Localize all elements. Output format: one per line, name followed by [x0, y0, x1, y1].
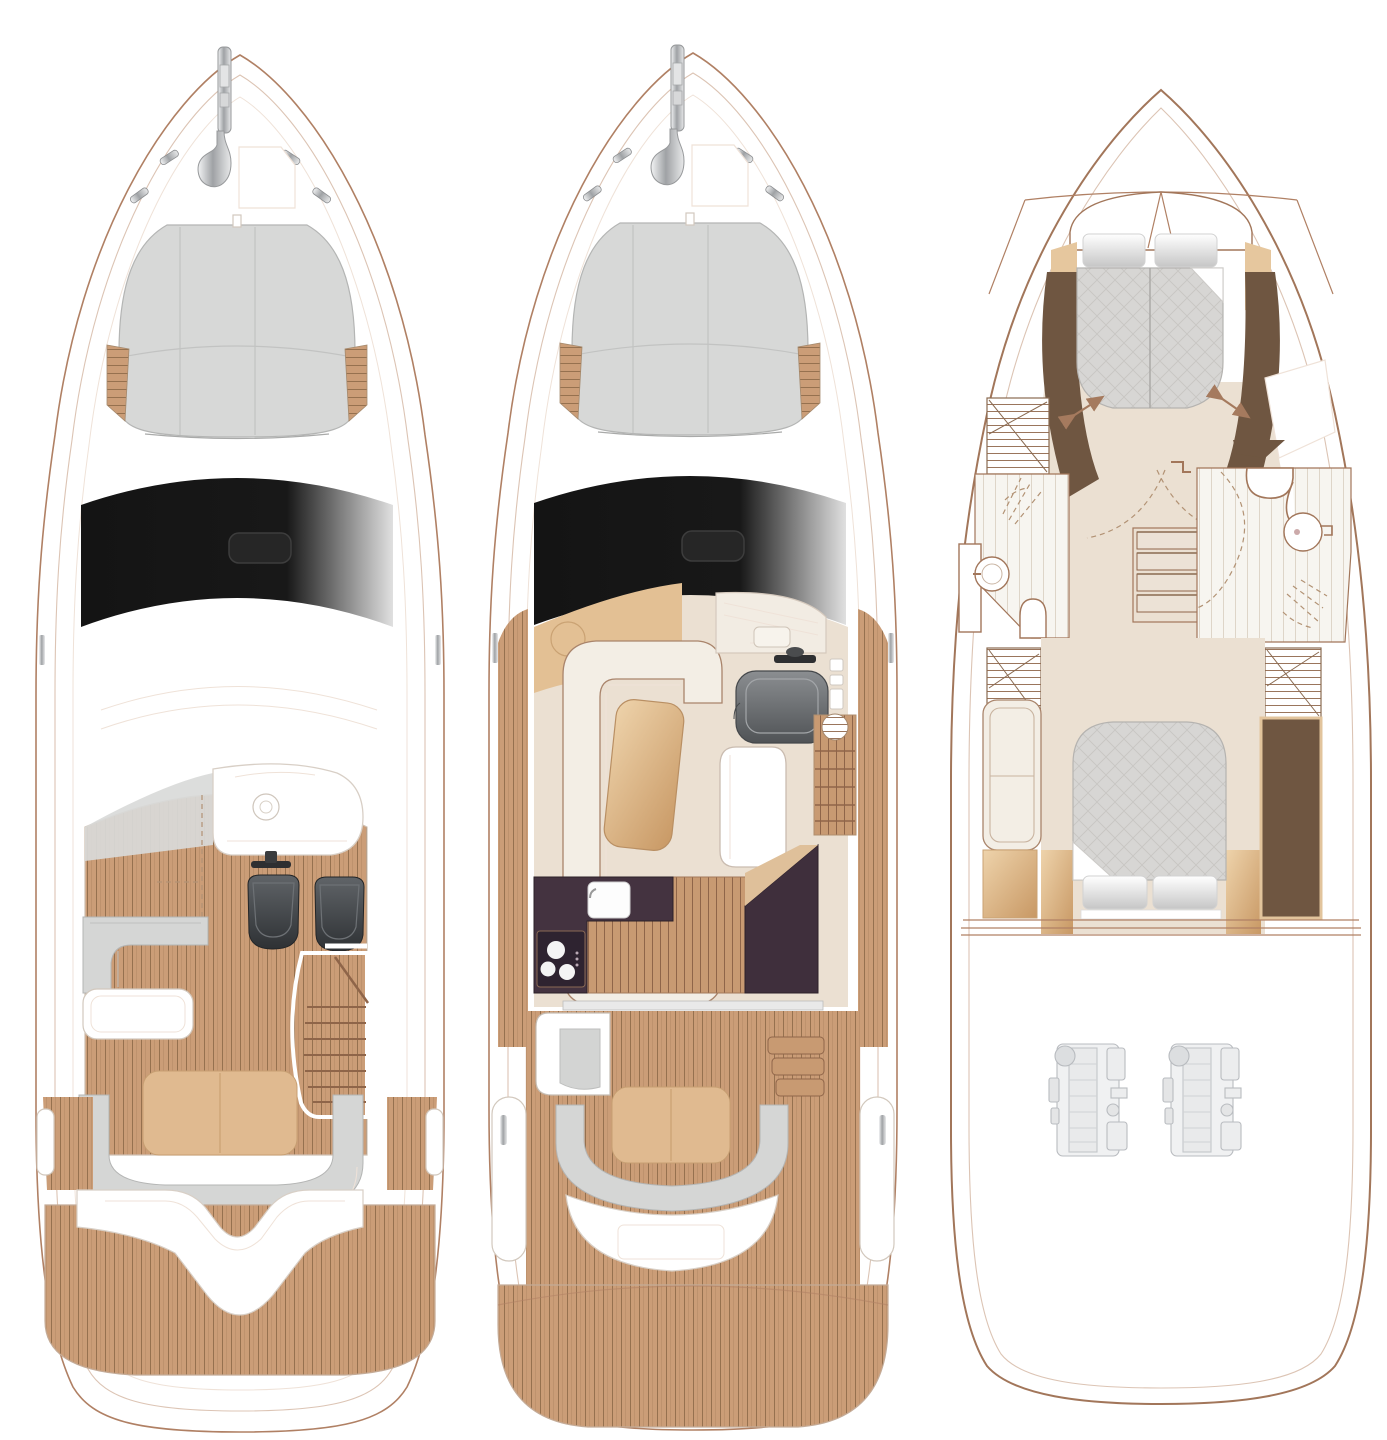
washbasin-icon: [1284, 513, 1322, 551]
side-cleat-right: [435, 635, 441, 665]
pillow: [1083, 234, 1145, 267]
vanity-below-sofa: [983, 850, 1037, 918]
cooktop-icon: [537, 931, 585, 987]
view-main-deck: [489, 45, 897, 1430]
view-lower-deck: [951, 90, 1371, 1404]
engine-port: [1049, 1044, 1127, 1156]
stairway-to-cockpit: [292, 953, 368, 1117]
instrument-binnacle: [754, 627, 790, 647]
bulwark-left: [492, 1097, 526, 1261]
side-cleat-left: [492, 633, 498, 663]
bed-mattress: [1073, 722, 1226, 880]
shower-room-port: [959, 474, 1069, 638]
side-deck-steps: [768, 1037, 824, 1096]
boarding-gate-left: [37, 1109, 54, 1175]
teak-side-deck-left: [498, 609, 528, 1047]
engine-starboard: [1163, 1044, 1241, 1156]
vanity-counter: [959, 544, 981, 632]
galley-sink: [588, 882, 630, 918]
side-cleat-left: [39, 635, 45, 665]
pillow: [1083, 876, 1147, 909]
swim-platform: [498, 1285, 888, 1427]
helm-seat-right: [315, 877, 364, 951]
deck-plans-drawing: [0, 0, 1387, 1440]
tan-mirror-left: [1041, 850, 1073, 934]
boarding-gate-right: [426, 1109, 443, 1175]
pillow: [1155, 234, 1217, 267]
side-switch-panel: [830, 659, 843, 709]
yacht-floorplan-sheet: [0, 0, 1387, 1440]
patio-door-track: [563, 1001, 823, 1010]
basin-drain: [1294, 529, 1300, 535]
companionway-steps: [814, 714, 856, 835]
side-cleat-right: [888, 633, 894, 663]
cockpit-wet-bar: [536, 1013, 610, 1095]
gate-latch-right: [879, 1115, 886, 1145]
flybridge-helm-console: [213, 764, 363, 855]
toilet-icon: [1020, 599, 1046, 638]
bulwark-right: [860, 1097, 894, 1261]
pillow: [1153, 876, 1217, 909]
view-flybridge-deck: [36, 47, 444, 1432]
tall-wardrobe: [1261, 718, 1321, 918]
day-head-starboard: [1197, 440, 1351, 642]
salon-table: [602, 698, 685, 852]
bed-base: [1081, 910, 1221, 919]
helm-seat-left: [248, 875, 299, 949]
gate-latch-left: [500, 1115, 507, 1145]
aft-cabin-sofa: [983, 700, 1041, 850]
teak-side-deck-right: [858, 609, 888, 1047]
tan-mirror-right: [1226, 850, 1261, 934]
